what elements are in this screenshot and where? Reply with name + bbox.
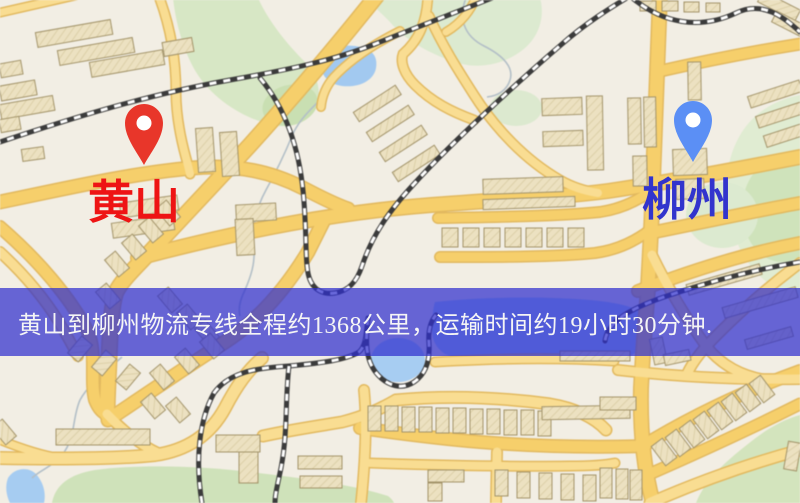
logistics-route-map: 黄山到柳州物流专线全程约1368公里，运输时间约19小时30分钟. 黄山 柳州 — [0, 0, 800, 503]
origin-pin-icon — [122, 102, 166, 166]
route-info-text: 黄山到柳州物流专线全程约1368公里，运输时间约19小时30分钟. — [0, 305, 713, 340]
map-canvas[interactable] — [0, 0, 800, 503]
destination-label: 柳州 — [642, 178, 732, 223]
origin-pin[interactable] — [122, 102, 166, 166]
destination-pin-icon — [671, 99, 715, 163]
destination-pin[interactable] — [671, 99, 715, 163]
route-info-banner: 黄山到柳州物流专线全程约1368公里，运输时间约19小时30分钟. — [0, 288, 800, 356]
origin-label: 黄山 — [88, 180, 180, 226]
